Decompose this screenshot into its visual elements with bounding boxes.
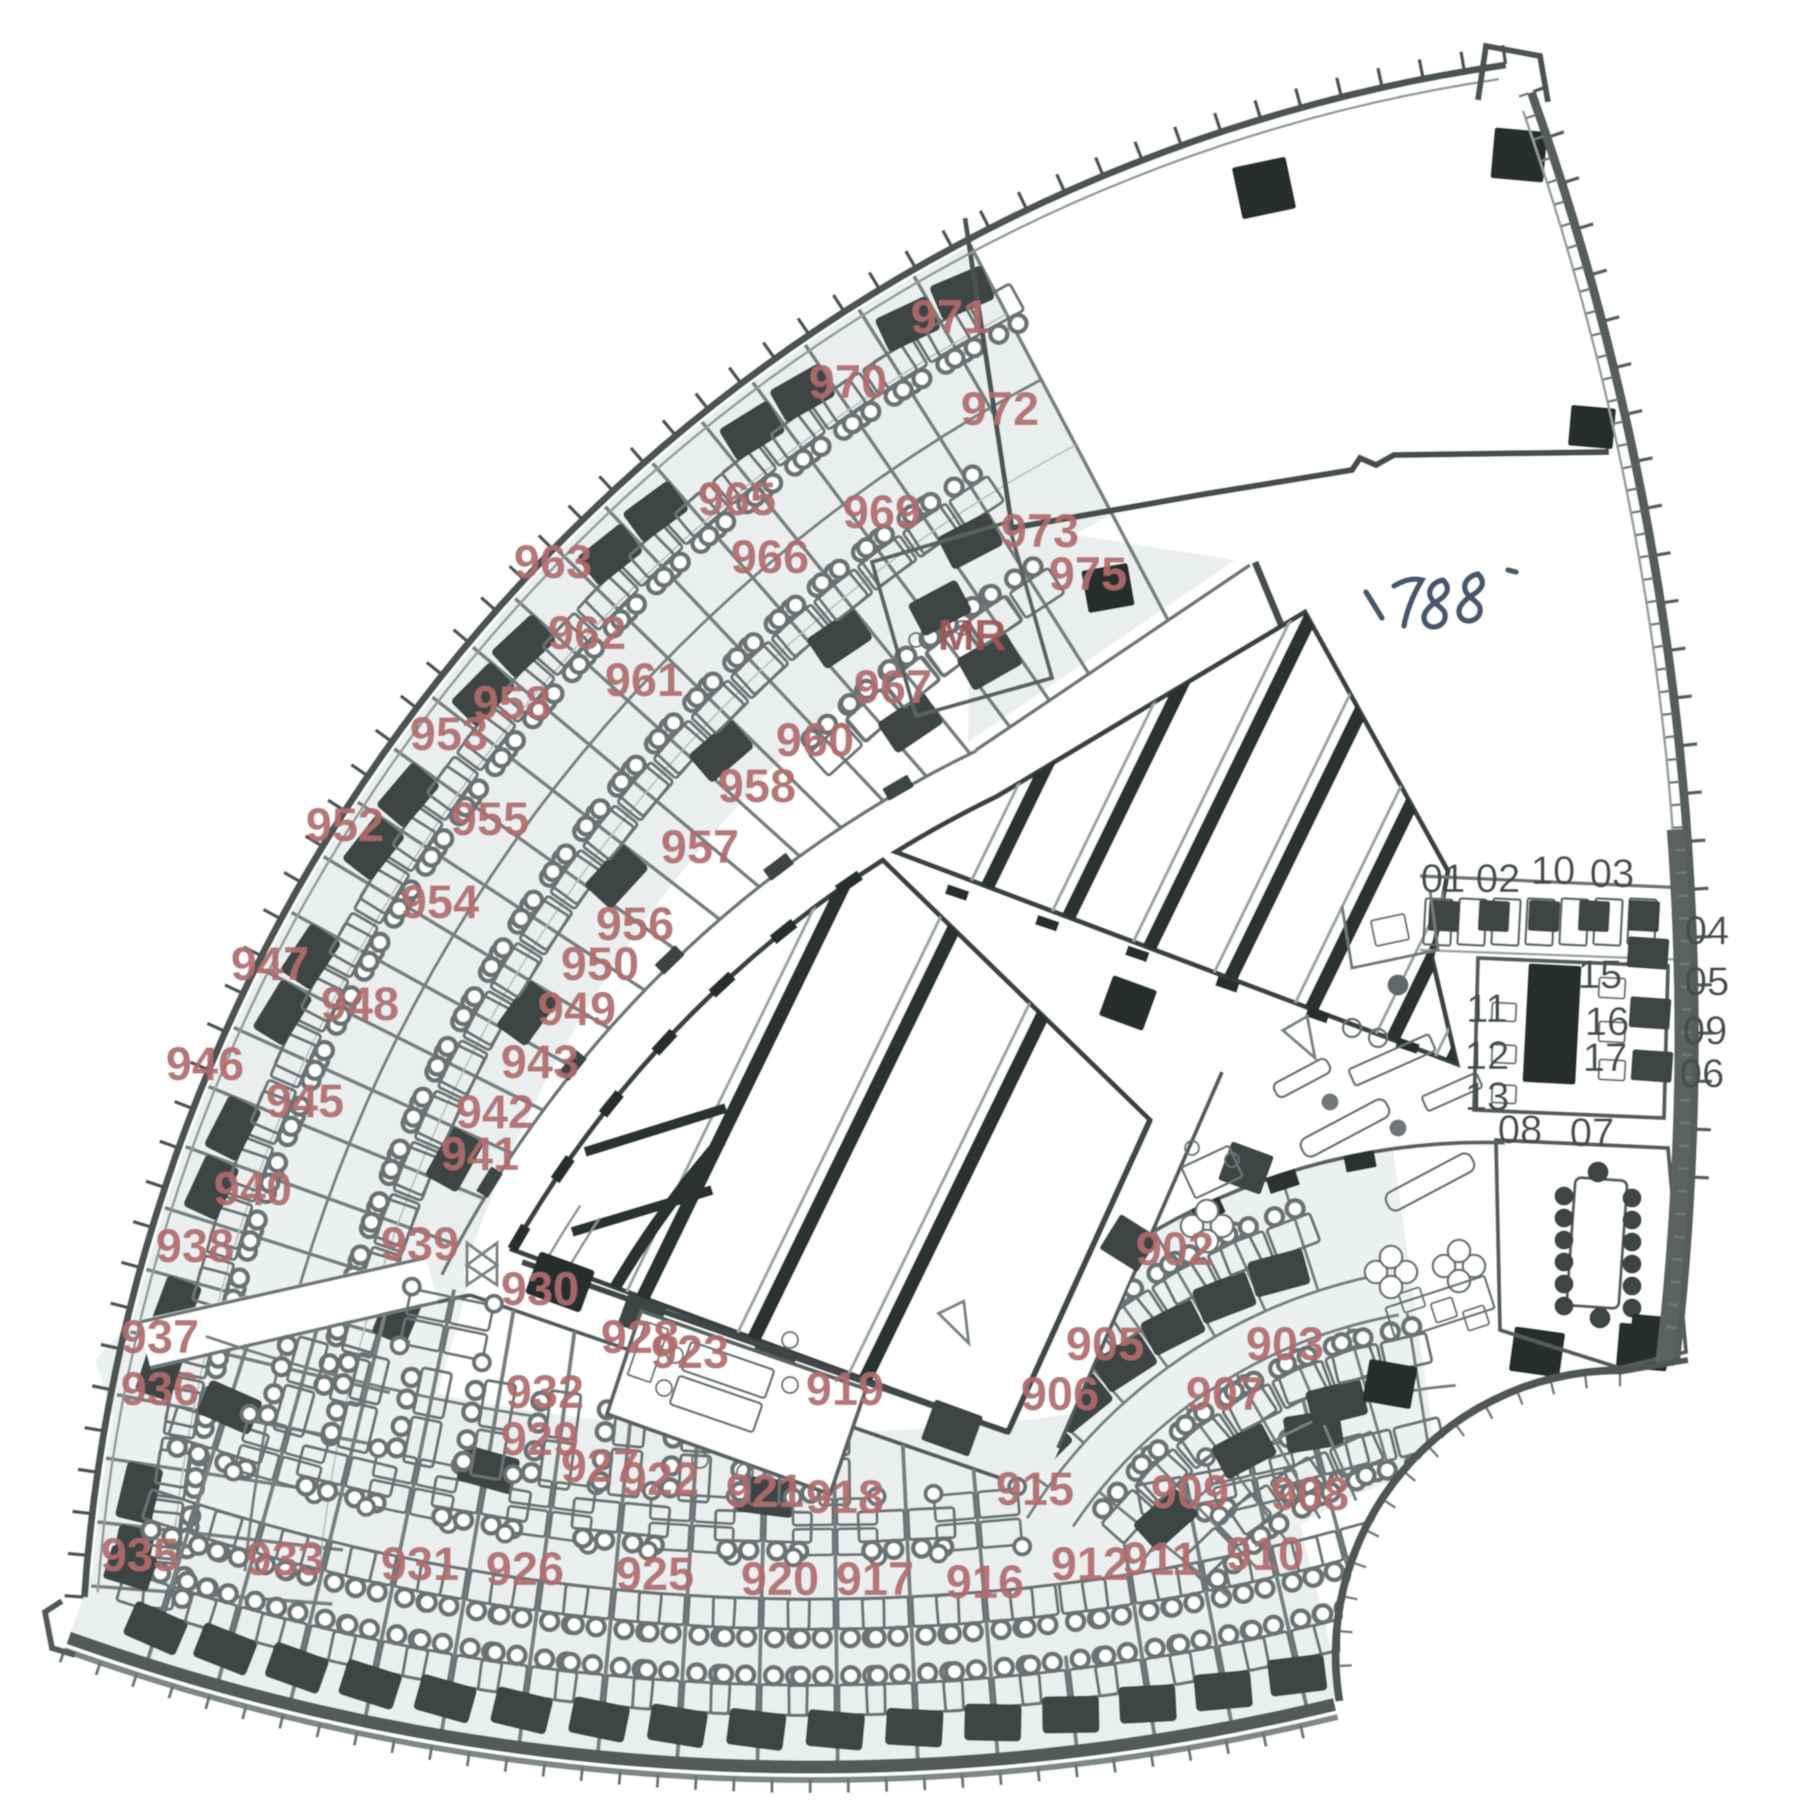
svg-text:01: 01 [1421,857,1466,901]
svg-text:12: 12 [1465,1034,1510,1078]
svg-text:967: 967 [854,660,932,713]
svg-text:965: 965 [698,472,776,525]
svg-text:945: 945 [266,1074,344,1127]
svg-text:03: 03 [1590,852,1635,896]
svg-text:920: 920 [741,1552,819,1605]
svg-text:918: 918 [806,1470,884,1523]
svg-text:911: 911 [1122,1532,1198,1585]
svg-text:953: 953 [410,707,488,760]
svg-text:952: 952 [306,798,384,851]
svg-text:948: 948 [321,977,399,1030]
svg-text:932: 932 [506,1365,584,1418]
svg-text:906: 906 [1021,1367,1099,1420]
svg-text:919: 919 [806,1362,884,1415]
svg-text:08: 08 [1498,1108,1543,1152]
svg-text:936: 936 [121,1362,199,1415]
svg-text:940: 940 [214,1162,292,1215]
svg-text:926: 926 [486,1542,564,1595]
svg-text:933: 933 [246,1532,324,1585]
svg-text:938: 938 [156,1219,234,1272]
svg-text:908: 908 [1271,1467,1349,1520]
svg-text:962: 962 [548,606,626,659]
svg-text:966: 966 [731,530,809,583]
svg-text:02: 02 [1476,857,1521,901]
svg-text:954: 954 [401,875,479,928]
svg-text:972: 972 [961,382,1039,435]
svg-text:07: 07 [1570,1111,1615,1155]
svg-text:957: 957 [661,820,739,873]
svg-text:917: 917 [836,1552,914,1605]
svg-text:09: 09 [1683,1009,1728,1053]
svg-text:939: 939 [381,1217,459,1270]
svg-text:963: 963 [514,535,592,588]
svg-text:946: 946 [166,1037,244,1090]
svg-text:921: 921 [726,1464,804,1517]
svg-text:937: 937 [121,1310,199,1363]
svg-text:970: 970 [809,355,887,408]
svg-text:903: 903 [1246,1317,1324,1370]
svg-text:935: 935 [101,1528,179,1581]
svg-text:955: 955 [451,792,529,845]
svg-text:916: 916 [946,1555,1024,1608]
svg-text:909: 909 [1151,1465,1229,1518]
svg-text:15: 15 [1578,953,1623,997]
svg-text:943: 943 [501,1035,579,1088]
svg-text:MR: MR [938,611,1006,660]
svg-text:902: 902 [1136,1222,1214,1275]
svg-text:912: 912 [1051,1537,1129,1590]
svg-text:958: 958 [718,759,796,812]
svg-text:907: 907 [1186,1367,1264,1420]
svg-text:905: 905 [1066,1317,1144,1370]
svg-text:11: 11 [1466,987,1508,1031]
svg-text:931: 931 [381,1537,459,1590]
svg-text:06: 06 [1680,1052,1725,1096]
svg-text:04: 04 [1685,909,1730,953]
svg-text:910: 910 [1226,1527,1304,1580]
svg-text:949: 949 [538,982,616,1035]
svg-text:930: 930 [501,1262,579,1315]
svg-text:975: 975 [1049,547,1127,600]
svg-text:05: 05 [1685,960,1730,1004]
svg-text:17: 17 [1583,1036,1628,1080]
svg-text:947: 947 [231,937,309,990]
svg-text:941: 941 [441,1127,519,1180]
svg-text:10: 10 [1531,849,1576,893]
svg-text:925: 925 [616,1547,694,1600]
svg-text:969: 969 [843,485,921,538]
svg-text:915: 915 [996,1462,1074,1515]
svg-text:922: 922 [621,1452,699,1505]
svg-text:971: 971 [911,290,989,343]
svg-text:961: 961 [605,653,683,706]
svg-text:923: 923 [651,1325,729,1378]
